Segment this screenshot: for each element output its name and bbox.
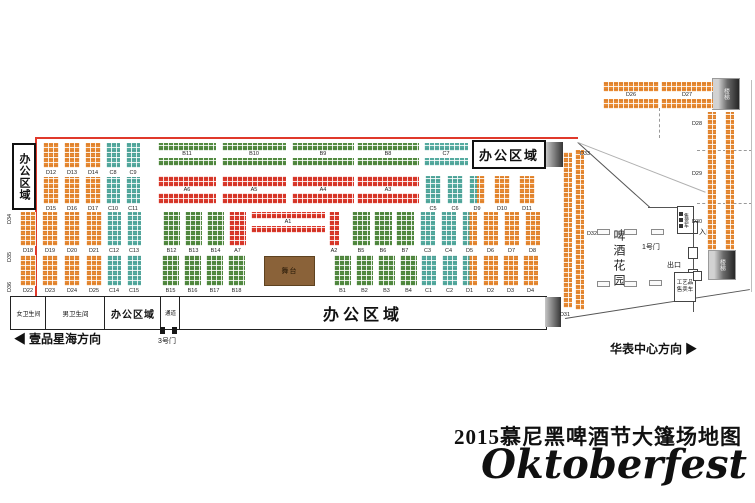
map-block-C1 [421,255,436,286]
map-block-label-C15: C15 [119,288,149,294]
map-block-label-A4: A4 [292,187,354,193]
map-block-C7 [424,143,468,151]
map-block-D7 [504,212,519,246]
office-area-bottom-large: 办公区域 [179,296,547,330]
map-block-C7 [424,158,468,166]
vendor-cart-label: 售货车 [683,213,688,228]
map-block-B9 [292,143,354,151]
map-block-D25 [86,255,102,286]
map-block-A4 [292,176,354,187]
map-block-A6 [158,193,216,204]
map-label-D30: D30 [690,219,704,225]
garden-table [624,281,637,287]
map-block-label-B8: B8 [357,151,419,158]
map-block-D16 [64,177,80,204]
map-block-strip [707,112,716,250]
map-block-B10 [222,158,286,166]
map-block-B18 [228,255,245,286]
map-block-D19 [42,212,58,246]
garden-table [597,281,610,287]
map-block-D15 [43,177,59,204]
map-block-strip [563,152,572,308]
gate3-label: 3号门 [150,336,184,346]
garden-table [651,229,664,235]
map-block-D26 [603,99,659,109]
office-area-bottom-small: 办公区域 [104,296,162,330]
festival-map: 办公区域 办公区域 女卫生间 男卫生间 办公区域 通道 办公区域 3号门 ◀ 壹… [0,0,755,503]
map-block-D3 [503,255,518,286]
map-block-D14 [85,143,101,168]
map-block-A3 [357,176,419,187]
map-block-B16 [184,255,201,286]
office-area-left-box: 办公区域 [12,143,36,210]
map-block-label-D26: D26 [603,92,659,99]
map-block-A6 [158,176,216,187]
map-block-A4 [292,193,354,204]
map-block-D12 [43,143,59,168]
map-block-label-A3: A3 [357,187,419,193]
map-block-C4 [441,212,456,246]
garden-table [597,229,610,235]
map-block-label-D8: D8 [517,248,548,254]
map-block-D22 [20,255,36,286]
map-block-D9 [469,176,485,204]
direction-right-text: 华表中心方向 [610,342,682,356]
section-divider-vertical [659,108,660,138]
map-label-D28: D28 [690,121,704,127]
map-block-label-D27: D27 [661,92,713,99]
map-block-A3 [357,193,419,204]
gate3-post [160,327,165,334]
map-block-C14 [107,255,121,286]
map-block-C15 [127,255,141,286]
map-block-C8 [106,143,120,168]
map-label-D34: D34 [7,212,13,226]
map-block-C11 [126,177,140,204]
map-block-B8 [357,158,419,166]
map-block-A2 [329,212,339,246]
gate3-post [172,327,177,334]
map-block-label-B18: B18 [220,288,253,294]
map-block-D4 [523,255,538,286]
direction-left-text: 壹品星海方向 [29,332,101,346]
map-block-B8 [357,143,419,151]
map-block-D5 [462,212,477,246]
map-block-strip [725,112,734,250]
map-block-D26 [603,82,659,92]
map-block-D6 [483,212,498,246]
craft-cart-post [693,271,702,281]
map-block-label-B10: B10 [222,151,286,158]
map-block-B10 [222,143,286,151]
map-block-B3 [378,255,395,286]
map-block-B11 [158,158,216,166]
map-block-A7 [229,212,246,246]
gate-post [688,247,698,259]
map-block-D27 [661,82,713,92]
map-block-label-A7: A7 [221,248,254,254]
map-block-D2 [483,255,498,286]
map-block-B4 [400,255,417,286]
map-block-label-C9: C9 [118,170,148,176]
map-block-label-A5: A5 [222,187,286,193]
stairs-top-box: 楼梯 [712,78,740,110]
map-label-D29: D29 [690,171,704,177]
map-block-C10 [106,177,120,204]
map-label-D36: D36 [7,280,13,294]
map-block-D18 [20,212,36,246]
direction-right: 华表中心方向 ▶ [610,340,697,357]
boundary-bottom [565,289,750,319]
left-arrow-icon: ◀ [14,332,26,346]
direction-left: ◀ 壹品星海方向 [14,330,101,347]
gate-box-topright [546,142,563,167]
map-block-label-C7: C7 [424,151,468,158]
map-block-label-D4: D4 [515,288,546,294]
map-block-B5 [352,212,370,246]
map-block-D11 [519,176,535,204]
garden-table [624,229,637,235]
map-block-A5 [222,193,286,204]
wall-top [35,137,578,139]
map-block-D17 [85,177,101,204]
map-block-B17 [206,255,223,286]
map-block-D13 [64,143,80,168]
map-block-D21 [86,212,102,246]
map-block-B1 [334,255,351,286]
gate1-label: 1号门 [642,242,660,252]
map-block-C13 [127,212,141,246]
boundary-diagonal-shallow [578,142,706,193]
map-block-B2 [356,255,373,286]
map-block-B11 [158,143,216,151]
beer-garden-label: 啤酒花园 [611,229,628,301]
map-title-oktoberfest: Oktoberfest [481,441,747,488]
map-block-B9 [292,158,354,166]
map-block-D20 [64,212,80,246]
map-label-D31: D31 [558,312,572,318]
map-block-C6 [447,176,463,204]
map-block-label-C13: C13 [119,248,149,254]
map-block-B13 [185,212,202,246]
map-block-C3 [420,212,435,246]
women-restroom: 女卫生间 [10,296,47,330]
map-block-A1 [251,226,325,233]
map-block-label-A6: A6 [158,187,216,193]
map-block-C5 [425,176,441,204]
map-block-D1 [462,255,477,286]
map-block-B6 [374,212,392,246]
map-block-B15 [162,255,179,286]
map-block-C9 [126,143,140,168]
stairs-bottom-box: 楼梯 [708,250,736,280]
map-label-D33: D33 [578,151,592,157]
map-block-B14 [207,212,224,246]
map-block-B12 [163,212,180,246]
map-block-A5 [222,176,286,187]
right-arrow-icon: ▶ [685,342,697,356]
exit-label: 出口 [667,260,681,270]
map-block-label-B9: B9 [292,151,354,158]
map-block-D23 [42,255,58,286]
map-block-D24 [64,255,80,286]
map-block-D27 [661,99,713,109]
men-restroom: 男卫生间 [45,296,106,330]
right-boundary-line [751,80,752,292]
garden-table [649,280,662,286]
map-block-D10 [494,176,510,204]
map-block-C2 [442,255,457,286]
map-block-A1 [251,212,325,219]
map-block-C12 [107,212,121,246]
map-block-label-A1: A1 [251,219,325,226]
map-block-B7 [396,212,414,246]
map-block-strip [575,150,584,310]
map-block-D8 [525,212,540,246]
passage-cell: 通道 [160,296,181,330]
map-label-D35: D35 [7,250,13,264]
office-area-topright-box: 办公区域 [472,140,546,169]
stage: 舞台 [264,256,315,286]
map-block-label-B11: B11 [158,151,216,158]
